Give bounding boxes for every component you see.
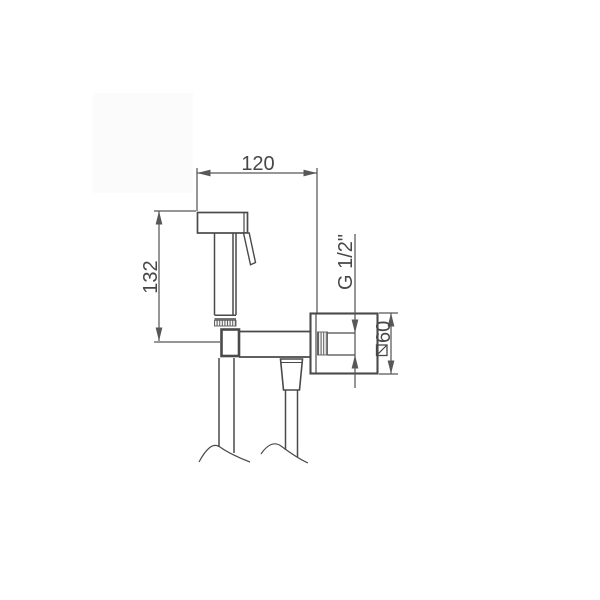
plate-dimension-value: 60 — [373, 321, 395, 343]
wall-plate — [311, 314, 378, 374]
drawing-canvas: 120 132 G 1/2" — [0, 0, 600, 600]
thread-dimension-value: G 1/2" — [335, 234, 357, 290]
hose-right — [281, 359, 303, 457]
hose-left — [219, 358, 234, 453]
hose-nut-cone — [281, 359, 303, 390]
sprayer-handle — [215, 233, 237, 326]
handle-joint-hatch — [215, 320, 237, 326]
bidet-sprayer-technical-drawing: 120 132 G 1/2" — [0, 0, 600, 600]
hose-right-tube — [286, 390, 298, 457]
arm-lines — [239, 332, 310, 358]
break-line-left — [199, 445, 250, 462]
sprayer-head — [198, 213, 256, 265]
hose-break-lines — [199, 444, 308, 463]
elbow-and-arm — [222, 330, 311, 358]
width-dimension-value: 120 — [241, 153, 274, 175]
break-line-right — [261, 444, 308, 463]
thread-nipple-hatch — [318, 332, 328, 355]
sprayer-trigger-lever — [244, 233, 256, 265]
elbow-block — [222, 330, 240, 357]
height-dimension-value: 132 — [140, 260, 162, 293]
faint-watermark-block — [93, 93, 193, 193]
